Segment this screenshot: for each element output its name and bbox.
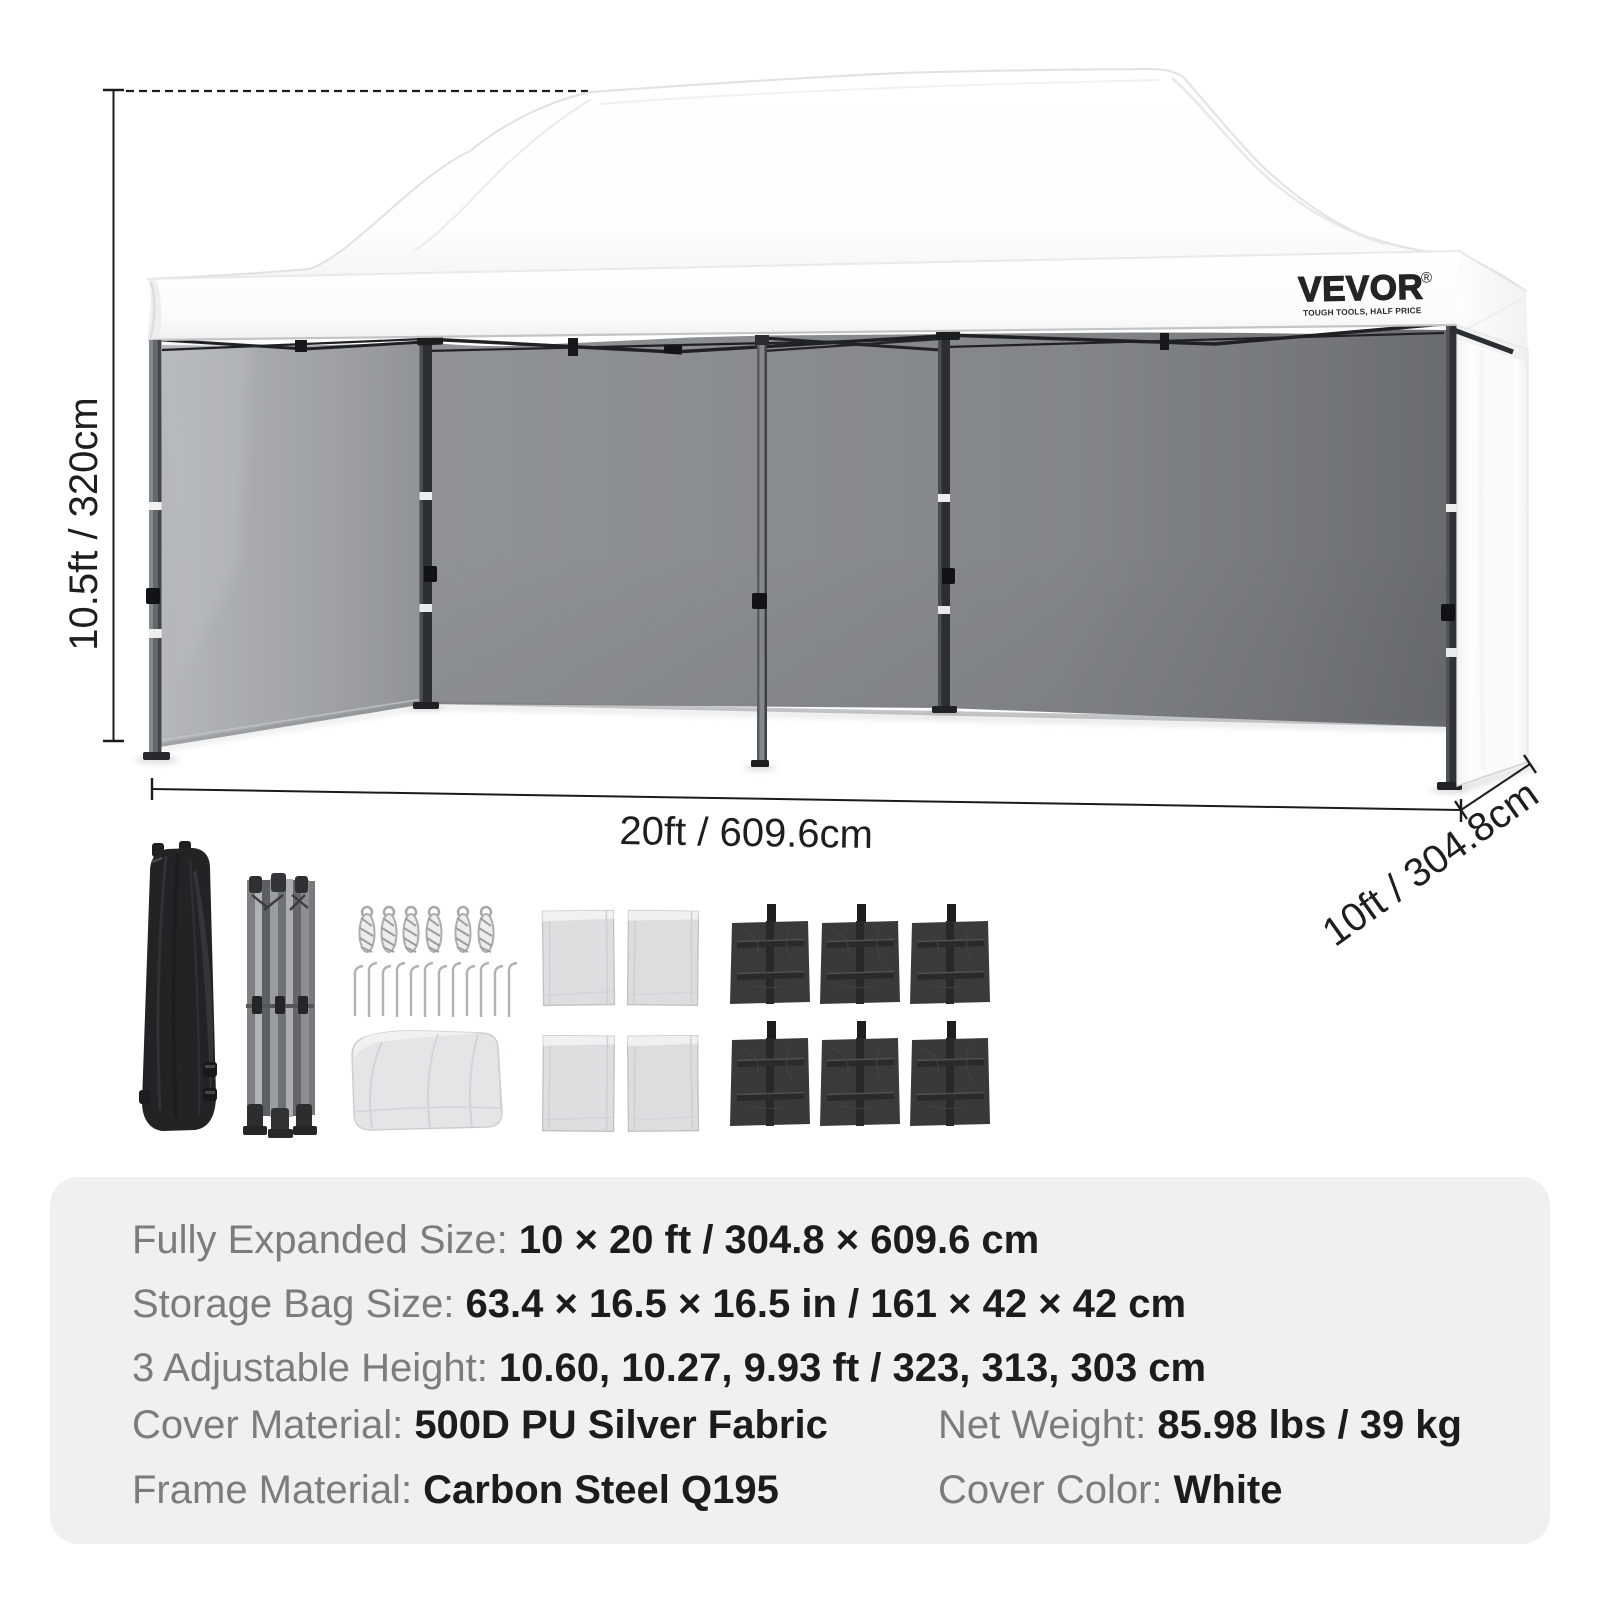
- svg-text:Cover Material: 500D PU Silver: Cover Material: 500D PU Silver Fabric: [132, 1403, 828, 1447]
- svg-text:10.5ft / 320cm: 10.5ft / 320cm: [62, 397, 106, 650]
- svg-text:3 Adjustable Height: 10.60, 10: 3 Adjustable Height: 10.60, 10.27, 9.93 …: [132, 1346, 1206, 1390]
- svg-text:®: ®: [1421, 269, 1432, 286]
- svg-text:Cover Color: White: Cover Color: White: [938, 1468, 1283, 1512]
- svg-text:VEVOR: VEVOR: [1298, 268, 1424, 310]
- svg-text:Storage Bag Size: 63.4 × 16.5: Storage Bag Size: 63.4 × 16.5 × 16.5 in …: [132, 1282, 1186, 1326]
- svg-text:Frame Material: Carbon Steel: Frame Material: Carbon Steel Q195: [132, 1468, 779, 1512]
- svg-text:Fully Expanded Size: 10 × 20 f: Fully Expanded Size: 10 × 20 ft / 304.8 …: [132, 1218, 1039, 1262]
- svg-text:20ft / 609.6cm: 20ft / 609.6cm: [619, 809, 873, 857]
- svg-text:Net Weight: 85.98 lbs / 39 kg: Net Weight: 85.98 lbs / 39 kg: [938, 1403, 1462, 1447]
